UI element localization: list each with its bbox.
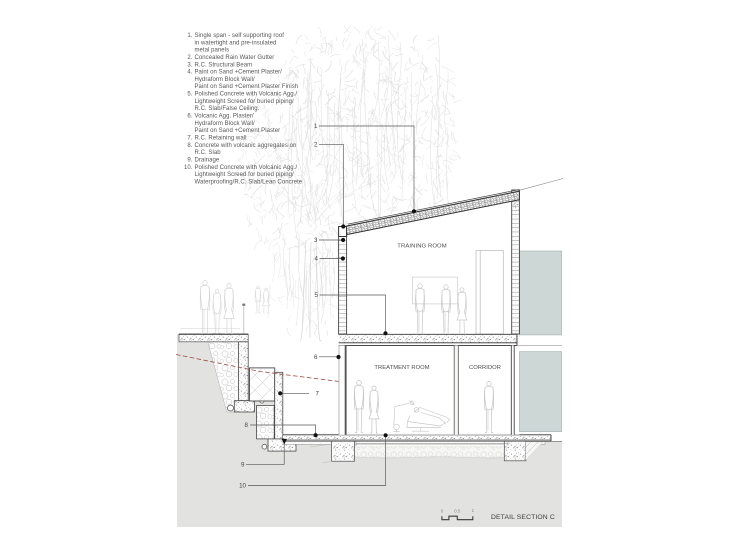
svg-text:Waterproofing/R.C. Slab/Lean C: Waterproofing/R.C. Slab/Lean Concrete (195, 179, 303, 185)
svg-text:TRAINING ROOM: TRAINING ROOM (397, 244, 446, 250)
svg-text:TREATMENT ROOM: TREATMENT ROOM (374, 365, 429, 371)
svg-text:Hydraform Block Wall/: Hydraform Block Wall/ (195, 121, 255, 127)
svg-text:in watertight and pre-insulate: in watertight and pre-insulated (195, 40, 277, 46)
svg-text:Hydraform Block Wall/: Hydraform Block Wall/ (195, 77, 255, 83)
svg-text:1.: 1. (187, 33, 192, 39)
svg-text:0.5: 0.5 (454, 509, 461, 514)
svg-text:Paint on Sand +Cement Plaster: Paint on Sand +Cement Plaster (195, 128, 281, 134)
svg-text:8.: 8. (187, 143, 192, 149)
svg-text:R.C. Retaining wall: R.C. Retaining wall (195, 136, 247, 142)
svg-text:R.C. Structural Beam: R.C. Structural Beam (195, 62, 253, 68)
svg-text:Polished Concrete with Volcani: Polished Concrete with Volcanic Agg./ (195, 92, 298, 98)
svg-text:metal panels: metal panels (195, 48, 230, 54)
svg-text:10: 10 (239, 483, 246, 490)
svg-text:6: 6 (314, 354, 318, 361)
svg-text:DETAIL SECTION C: DETAIL SECTION C (491, 514, 555, 521)
svg-text:Drainage: Drainage (195, 157, 220, 163)
svg-text:3: 3 (314, 237, 318, 244)
svg-text:Lightweight Screed for buried: Lightweight Screed for buried piping/ (195, 99, 295, 105)
svg-text:3.: 3. (187, 62, 192, 68)
svg-text:R.C. Slab/False Ceiling.: R.C. Slab/False Ceiling. (195, 106, 260, 112)
svg-text:9.: 9. (187, 157, 192, 163)
svg-text:Concealed Rain Water Gutter: Concealed Rain Water Gutter (195, 55, 275, 61)
svg-text:7.: 7. (187, 136, 192, 142)
svg-text:Paint on Sand +Cement Plaster: Paint on Sand +Cement Plaster Finish (195, 84, 299, 90)
svg-text:Single span - self supporting: Single span - self supporting roof (195, 33, 285, 39)
svg-text:8: 8 (245, 422, 249, 429)
svg-text:2.: 2. (187, 55, 192, 61)
svg-text:5: 5 (315, 292, 319, 299)
svg-text:Concrete with volcanic aggrega: Concrete with volcanic aggregates on (195, 143, 297, 149)
svg-text:4: 4 (315, 256, 319, 263)
svg-text:Volcanic Agg. Plaster/: Volcanic Agg. Plaster/ (195, 114, 254, 120)
svg-text:CORRIDOR: CORRIDOR (469, 365, 501, 371)
svg-text:5.: 5. (187, 92, 192, 98)
svg-text:9: 9 (241, 462, 245, 469)
svg-text:10.: 10. (184, 165, 193, 171)
svg-text:2: 2 (314, 142, 318, 149)
svg-text:Paint on Sand +Cement Plaster/: Paint on Sand +Cement Plaster/ (195, 70, 283, 76)
svg-text:4.: 4. (187, 70, 192, 76)
svg-text:R.C. Slab: R.C. Slab (195, 150, 222, 156)
svg-text:1: 1 (314, 123, 318, 130)
svg-text:7: 7 (316, 391, 320, 398)
svg-text:6.: 6. (187, 114, 192, 120)
svg-text:Polished Concrete with Volcani: Polished Concrete with Volcanic Agg./ (195, 165, 298, 171)
svg-text:Lightweight Screed for buried: Lightweight Screed for buried piping/ (195, 172, 295, 178)
